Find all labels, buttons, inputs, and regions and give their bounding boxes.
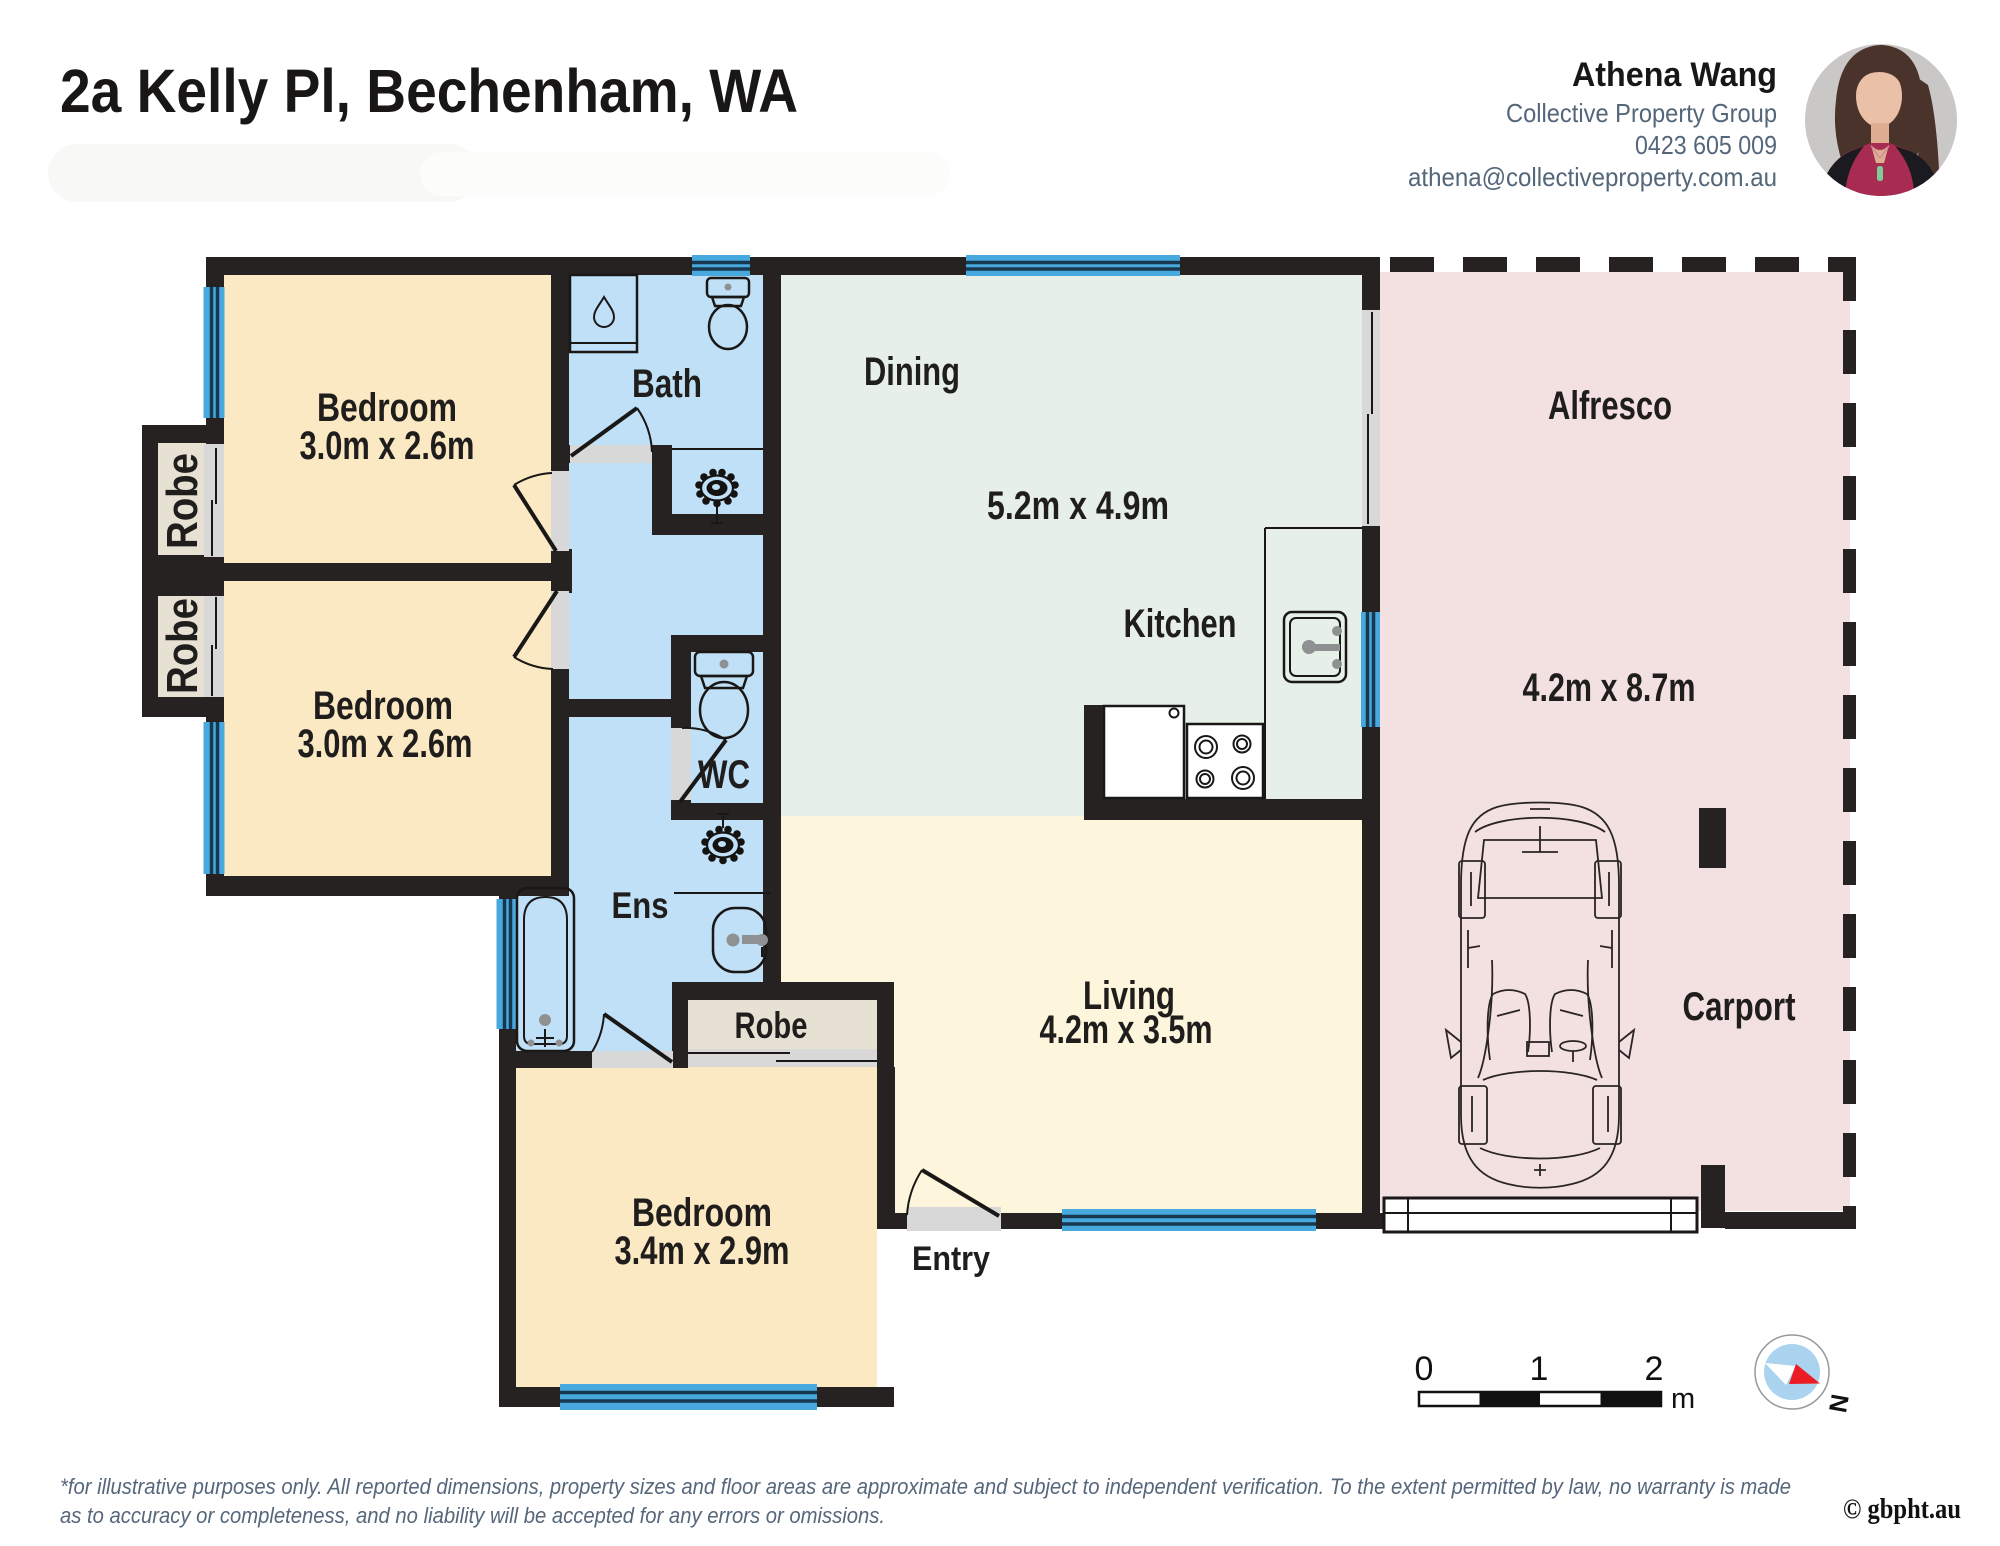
svg-text:4.2m x 8.7m: 4.2m x 8.7m bbox=[1523, 666, 1696, 710]
svg-text:Dining: Dining bbox=[864, 350, 960, 394]
svg-text:Robe: Robe bbox=[735, 1005, 808, 1046]
svg-text:Bath: Bath bbox=[632, 362, 702, 406]
svg-text:Carport: Carport bbox=[1683, 985, 1796, 1029]
svg-text:WC: WC bbox=[698, 753, 750, 797]
svg-text:Alfresco: Alfresco bbox=[1548, 384, 1672, 428]
svg-text:m: m bbox=[1671, 1383, 1695, 1415]
svg-text:Robe: Robe bbox=[158, 598, 207, 694]
svg-text:athena@collectiveproperty.com.: athena@collectiveproperty.com.au bbox=[1408, 162, 1777, 192]
svg-text:© gbpht.au: © gbpht.au bbox=[1843, 1494, 1961, 1525]
svg-text:5.2m x 4.9m: 5.2m x 4.9m bbox=[987, 484, 1169, 528]
svg-text:3.0m x 2.6m: 3.0m x 2.6m bbox=[298, 722, 473, 766]
svg-text:Athena Wang: Athena Wang bbox=[1572, 56, 1777, 94]
svg-text:2: 2 bbox=[1645, 1350, 1664, 1388]
svg-text:Robe: Robe bbox=[158, 453, 207, 549]
svg-text:1: 1 bbox=[1530, 1350, 1549, 1388]
svg-text:2a Kelly Pl, Bechenham, WA: 2a Kelly Pl, Bechenham, WA bbox=[60, 57, 798, 125]
svg-text:4.2m x 3.5m: 4.2m x 3.5m bbox=[1040, 1008, 1213, 1052]
svg-text:0: 0 bbox=[1415, 1350, 1434, 1388]
svg-text:*for illustrative purposes onl: *for illustrative purposes only. All rep… bbox=[60, 1474, 1791, 1499]
svg-text:Entry: Entry bbox=[912, 1240, 990, 1278]
svg-text:Kitchen: Kitchen bbox=[1124, 602, 1237, 646]
svg-text:Collective Property Group: Collective Property Group bbox=[1506, 98, 1777, 128]
svg-text:0423 605 009: 0423 605 009 bbox=[1635, 130, 1777, 160]
svg-text:3.0m x 2.6m: 3.0m x 2.6m bbox=[300, 424, 475, 468]
svg-text:Ens: Ens bbox=[612, 885, 669, 926]
svg-text:as to accuracy or completeness: as to accuracy or completeness, and no l… bbox=[60, 1503, 885, 1528]
svg-text:3.4m x 2.9m: 3.4m x 2.9m bbox=[615, 1229, 790, 1273]
